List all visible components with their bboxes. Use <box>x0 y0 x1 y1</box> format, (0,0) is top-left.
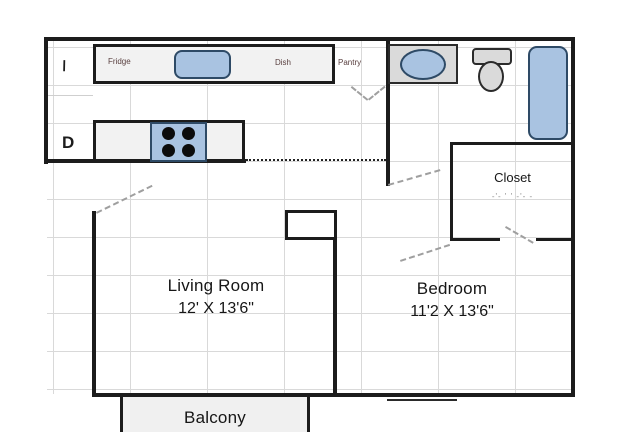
outer-wall-left-lower <box>92 211 96 397</box>
closet-top-wall <box>452 142 575 145</box>
bathroom-sink <box>400 49 446 80</box>
bedroom-window-line <box>387 399 457 401</box>
burner-icon <box>182 144 195 157</box>
closet-bottom-wall-left <box>450 238 500 241</box>
bedroom-label: Bedroom <box>352 279 552 299</box>
toilet-bowl <box>478 61 504 92</box>
burner-icon <box>182 127 195 140</box>
living-room-dimensions: 12' X 13'6" <box>116 300 316 318</box>
stove-burners <box>150 122 207 162</box>
outer-wall-top <box>44 37 575 41</box>
burner-icon <box>162 144 175 157</box>
dishwasher-label: Dish <box>275 58 291 67</box>
bathtub <box>528 46 568 140</box>
closet-label: Closet <box>455 170 570 185</box>
burner-icon <box>162 127 175 140</box>
outer-wall-right <box>571 37 575 397</box>
closet-left-wall <box>450 142 453 241</box>
living-bedroom-divider-wall <box>333 240 337 395</box>
wall-bump-out <box>285 210 337 240</box>
laundry-cell-divider <box>48 95 93 96</box>
floor-plan: \ D Fridge Dish Pantry Closet -'- ' ' -'… <box>0 0 640 432</box>
closet-bottom-wall-right <box>536 238 575 241</box>
pantry-label: Pantry <box>338 58 361 67</box>
fridge-label: Fridge <box>108 57 131 66</box>
closet-dimensions-obscured: -'- ' ' -'- - <box>455 192 570 201</box>
balcony-label: Balcony <box>120 408 310 428</box>
dryer-mark: D <box>62 133 74 153</box>
kitchen-pass-through-dotted-line <box>246 159 386 161</box>
living-room-label: Living Room <box>116 276 316 296</box>
kitchen-sink <box>174 50 231 79</box>
bedroom-dimensions: 11'2 X 13'6" <box>352 303 552 321</box>
outer-wall-left-upper <box>44 37 48 164</box>
